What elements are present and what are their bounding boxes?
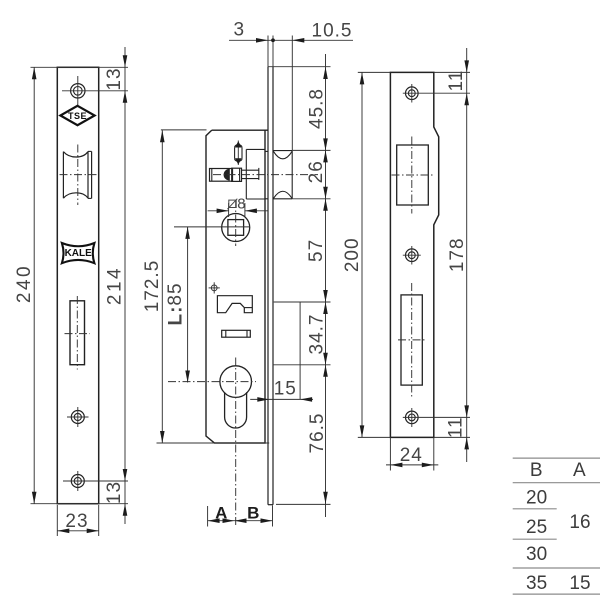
svg-text:11: 11 (446, 70, 467, 92)
svg-text:214: 214 (105, 266, 126, 305)
svg-text:3: 3 (234, 20, 246, 41)
svg-text:8: 8 (237, 195, 245, 212)
svg-text:TSE: TSE (68, 111, 87, 121)
svg-text:23: 23 (65, 511, 88, 532)
svg-text:25: 25 (526, 517, 547, 538)
svg-text:45.8: 45.8 (306, 88, 327, 129)
svg-text:13: 13 (104, 481, 125, 504)
svg-text:76.5: 76.5 (307, 413, 328, 454)
svg-text:B: B (530, 460, 543, 481)
svg-text:200: 200 (342, 237, 363, 272)
svg-text:A: A (573, 460, 586, 481)
svg-text:16: 16 (569, 512, 590, 533)
svg-text:24: 24 (400, 445, 423, 466)
svg-text:KALE: KALE (65, 248, 93, 259)
svg-text:34.7: 34.7 (307, 314, 328, 355)
svg-text:178: 178 (447, 237, 468, 272)
svg-text:10.5: 10.5 (312, 21, 353, 42)
svg-text:240: 240 (14, 264, 35, 303)
svg-text:13: 13 (104, 67, 125, 90)
svg-text:30: 30 (526, 544, 547, 565)
svg-text:20: 20 (526, 488, 547, 509)
svg-text:26: 26 (306, 160, 327, 183)
svg-text:B: B (247, 504, 259, 523)
svg-text:35: 35 (526, 573, 547, 594)
svg-text:11: 11 (446, 416, 467, 438)
svg-text:172.5: 172.5 (142, 260, 163, 313)
svg-text:L:85: L:85 (165, 282, 186, 325)
svg-text:15: 15 (569, 573, 590, 594)
svg-text:57: 57 (306, 239, 327, 262)
svg-text:A: A (215, 504, 227, 523)
svg-text:15: 15 (274, 379, 297, 400)
